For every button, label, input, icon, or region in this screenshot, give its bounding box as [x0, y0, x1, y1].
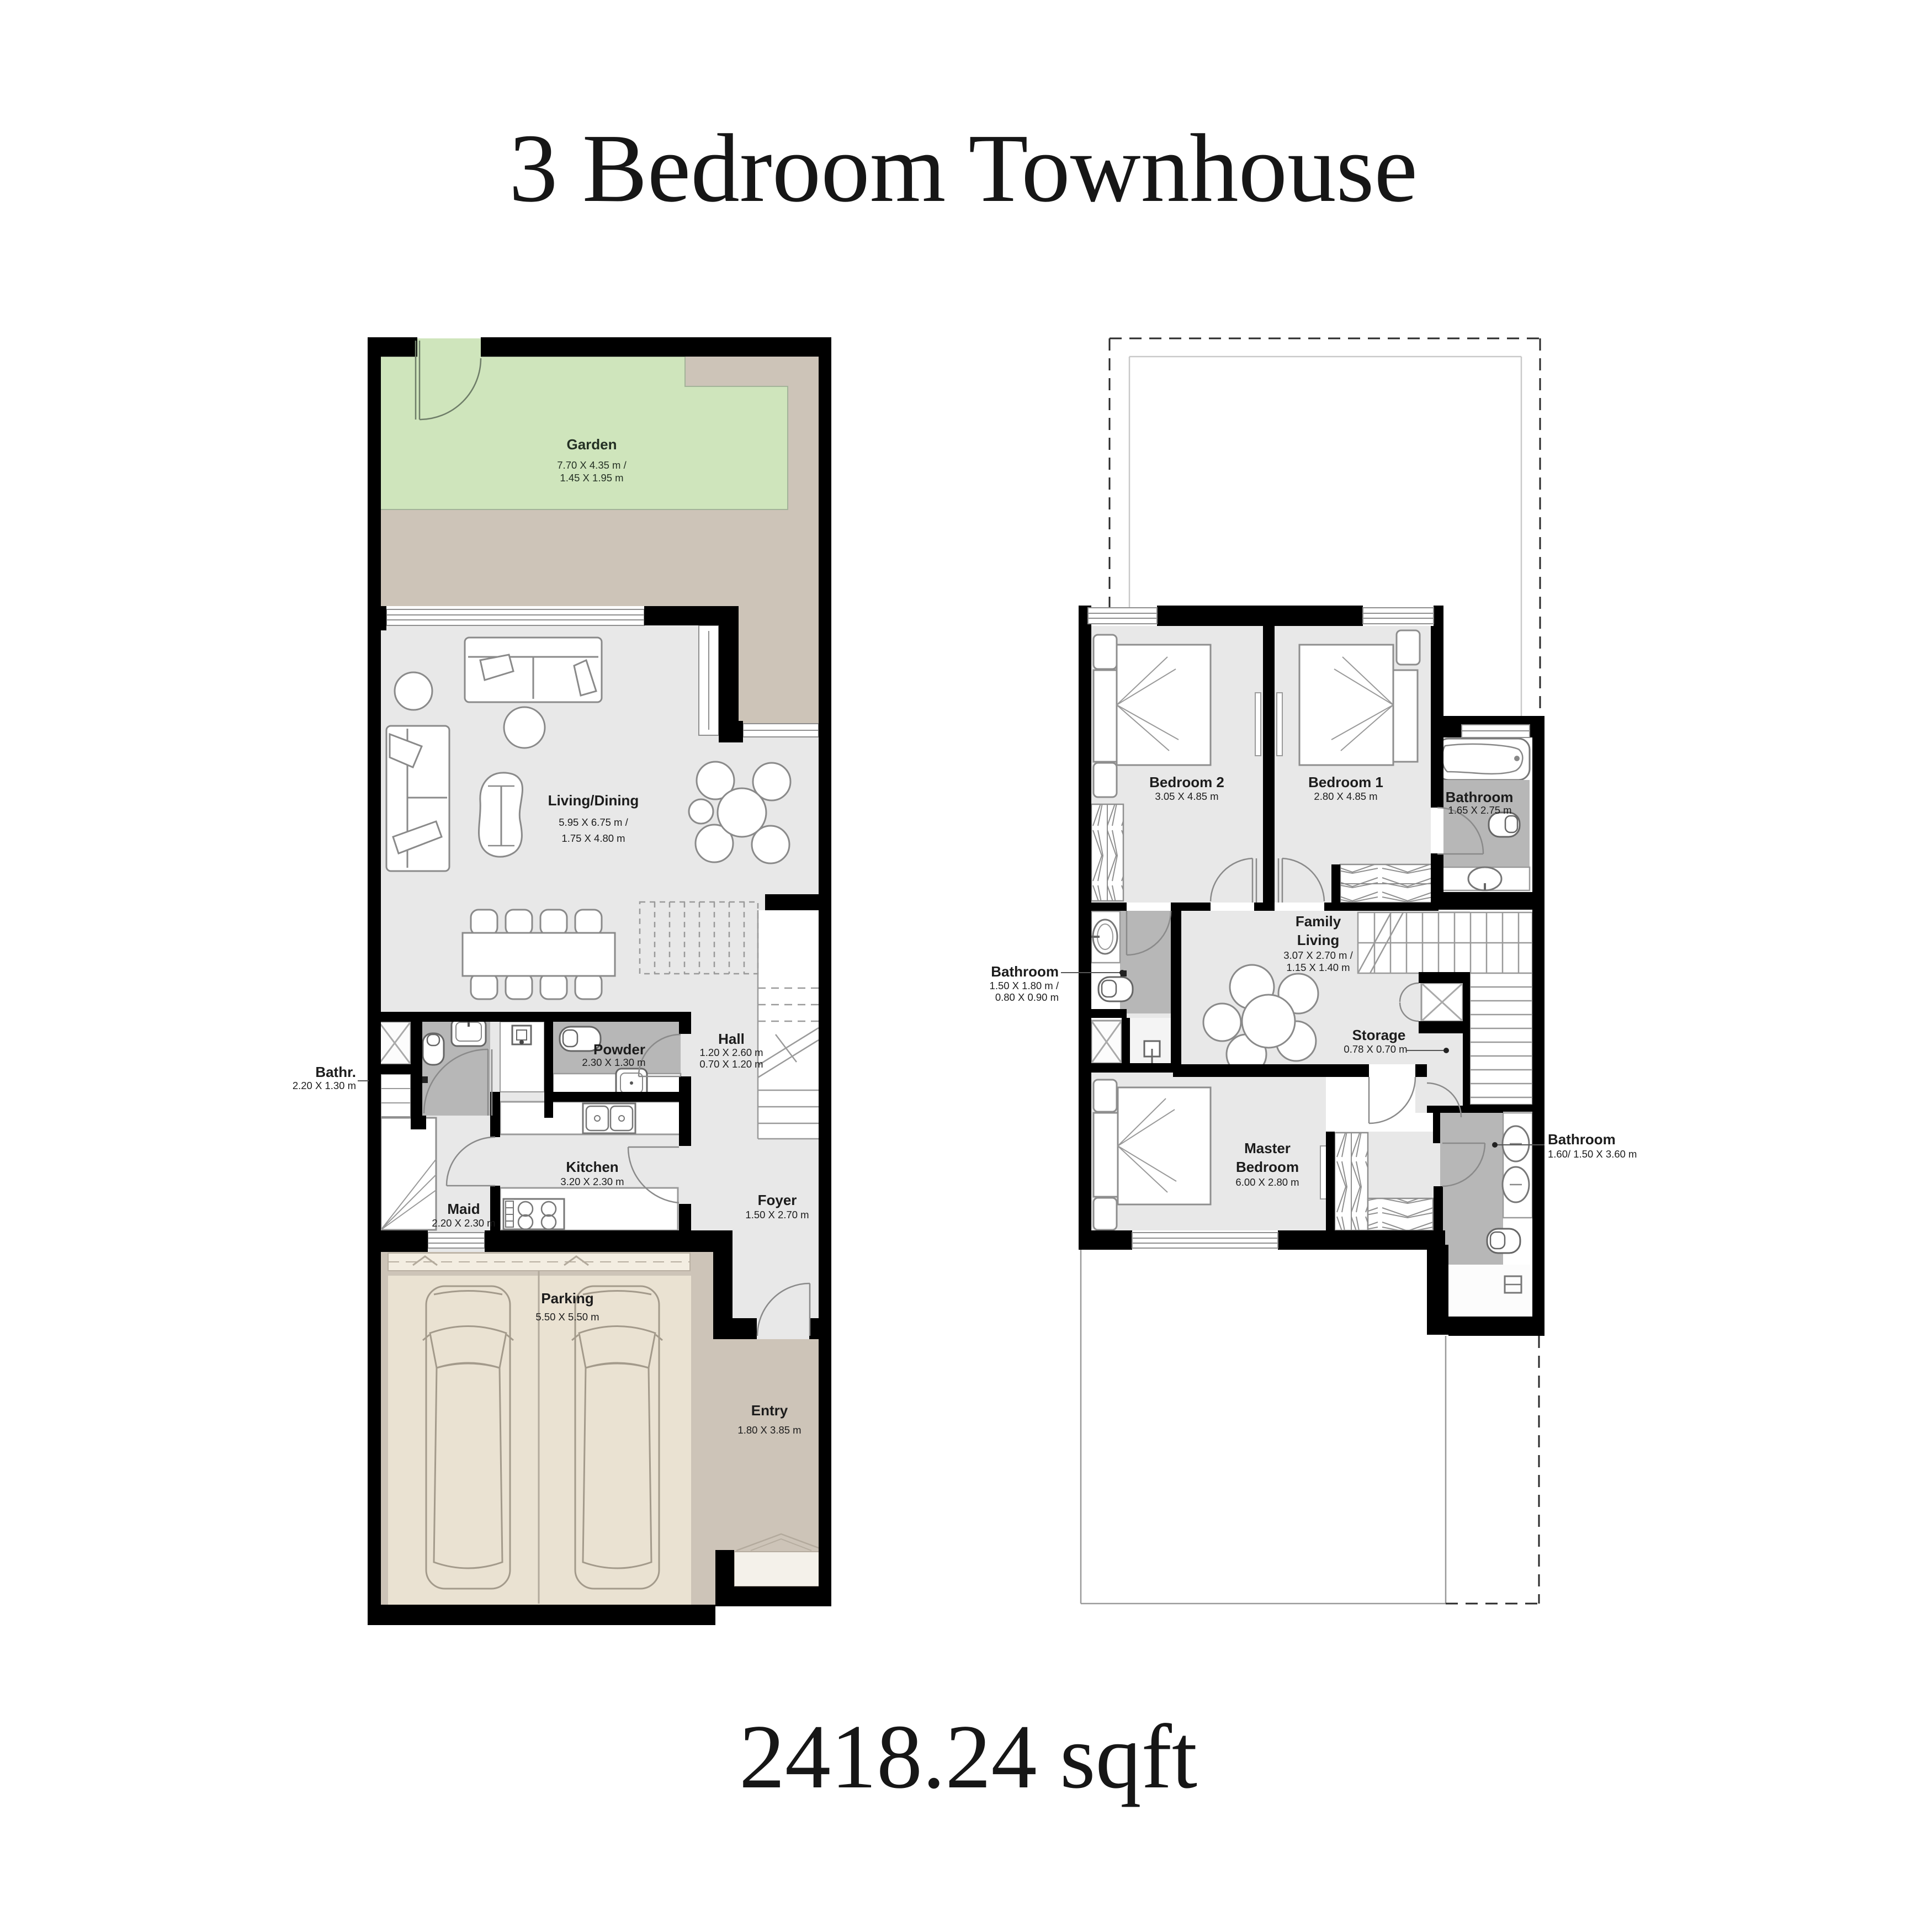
svg-text:Bedroom 1: Bedroom 1	[1308, 774, 1383, 790]
svg-text:5.50 X 5.50 m: 5.50 X 5.50 m	[535, 1311, 599, 1323]
svg-text:Maid: Maid	[447, 1201, 480, 1217]
svg-text:Bedroom: Bedroom	[1236, 1159, 1299, 1175]
svg-text:Master: Master	[1244, 1140, 1291, 1156]
svg-text:Bathroom: Bathroom	[1446, 789, 1514, 805]
svg-text:Bathr.: Bathr.	[315, 1064, 356, 1080]
svg-text:0.78 X 0.70 m: 0.78 X 0.70 m	[1344, 1043, 1407, 1055]
svg-text:1.80 X 3.85 m: 1.80 X 3.85 m	[737, 1424, 801, 1436]
svg-text:2418.24 sqft: 2418.24 sqft	[739, 1706, 1197, 1807]
svg-text:1.60/ 1.50 X 3.60 m: 1.60/ 1.50 X 3.60 m	[1548, 1148, 1637, 1160]
svg-text:1.20 X 2.60 m: 1.20 X 2.60 m	[699, 1047, 763, 1058]
svg-text:3.07 X 2.70 m /: 3.07 X 2.70 m /	[1283, 949, 1353, 961]
svg-text:3.20 X 2.30 m: 3.20 X 2.30 m	[560, 1176, 624, 1187]
svg-text:Bathroom: Bathroom	[991, 963, 1059, 980]
svg-text:Bedroom 2: Bedroom 2	[1149, 774, 1224, 790]
svg-text:2.80 X 4.85 m: 2.80 X 4.85 m	[1314, 790, 1377, 802]
svg-text:1.50 X 2.70 m: 1.50 X 2.70 m	[745, 1209, 809, 1220]
svg-text:1.75 X 4.80 m: 1.75 X 4.80 m	[561, 832, 625, 844]
svg-text:Family: Family	[1296, 913, 1341, 930]
svg-text:2.20 X 1.30 m: 2.20 X 1.30 m	[293, 1080, 356, 1091]
svg-text:0.70 X 1.20 m: 0.70 X 1.20 m	[699, 1058, 763, 1070]
svg-text:5.95 X 6.75 m /: 5.95 X 6.75 m /	[559, 816, 628, 828]
svg-text:Foyer: Foyer	[758, 1192, 797, 1208]
svg-text:Garden: Garden	[566, 436, 617, 453]
svg-text:Powder: Powder	[593, 1041, 645, 1058]
svg-text:1.45 X 1.95 m: 1.45 X 1.95 m	[560, 472, 623, 484]
svg-text:2.30 X 1.30 m: 2.30 X 1.30 m	[582, 1057, 645, 1068]
svg-text:Entry: Entry	[751, 1402, 788, 1419]
svg-text:1.15 X 1.40 m: 1.15 X 1.40 m	[1286, 962, 1350, 973]
svg-text:Kitchen: Kitchen	[566, 1159, 618, 1175]
svg-text:Parking: Parking	[541, 1290, 593, 1307]
svg-text:Bathroom: Bathroom	[1548, 1131, 1616, 1148]
svg-text:Storage: Storage	[1352, 1027, 1406, 1043]
svg-text:0.80 X 0.90 m: 0.80 X 0.90 m	[995, 991, 1059, 1003]
svg-text:Living: Living	[1297, 932, 1340, 948]
svg-text:3 Bedroom Townhouse: 3 Bedroom Townhouse	[509, 114, 1418, 222]
svg-text:6.00 X 2.80 m: 6.00 X 2.80 m	[1235, 1176, 1299, 1188]
svg-text:Living/Dining: Living/Dining	[548, 792, 639, 809]
svg-text:3.05 X 4.85 m: 3.05 X 4.85 m	[1155, 790, 1218, 802]
svg-text:7.70 X 4.35 m /: 7.70 X 4.35 m /	[557, 459, 627, 471]
svg-text:Hall: Hall	[718, 1031, 745, 1047]
svg-text:2.20 X 2.30 m: 2.20 X 2.30 m	[432, 1217, 495, 1229]
svg-text:1.50 X 1.80 m /: 1.50 X 1.80 m /	[990, 980, 1059, 991]
svg-text:1.65 X 2.75 m: 1.65 X 2.75 m	[1448, 804, 1511, 816]
